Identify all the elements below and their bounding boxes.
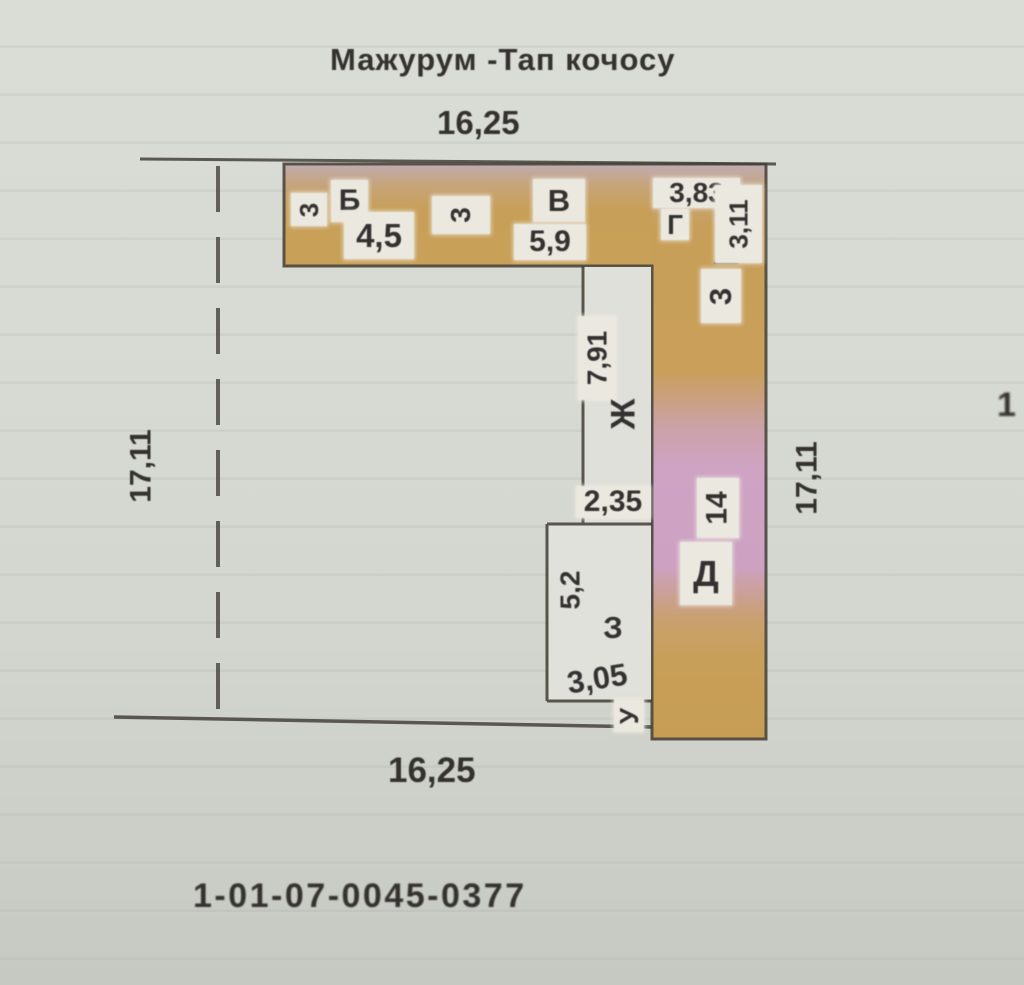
dim-right-17-11-text: 17,11 (793, 441, 823, 514)
street-title: Мажурум -Тап кочосу (330, 44, 676, 75)
room-label-u: У (614, 699, 644, 732)
scanned-plan-document: Мажурум -Тап кочосу 16,25 17,11 17,11 16… (0, 0, 1024, 985)
room-label-g-text: Г (667, 211, 683, 239)
dim-3-a: 3 (291, 193, 327, 226)
room-label-zh-text: Ж (606, 399, 640, 430)
dim-3-11: 3,11 (715, 185, 762, 263)
dim-bottom-16-25: 16,25 (388, 753, 476, 788)
dim-3-c: 3 (701, 269, 741, 323)
edge-artifact-digit: 1 (997, 388, 1016, 422)
room-label-g: Г (661, 209, 689, 240)
plot-boundary-bottom-line (114, 717, 652, 727)
dim-4-5-text: 4,5 (356, 219, 402, 252)
room-label-z-text: З (603, 612, 622, 643)
dim-3-05: 3,05 (556, 660, 638, 697)
dim-7-91: 7,91 (578, 316, 616, 400)
dim-top-16-25: 16,25 (437, 106, 520, 139)
dim-3-05-text: 3,05 (565, 658, 629, 698)
cadastral-number: 1-01-07-0045-0377 (193, 879, 527, 913)
room-label-d-text: Д (693, 556, 719, 592)
room-label-zh: Ж (600, 390, 646, 438)
room-label-d: Д (680, 542, 732, 605)
dim-7-91-text: 7,91 (583, 331, 611, 386)
dim-left-17-11-text: 17,11 (127, 429, 157, 502)
dim-3-b: 3 (432, 196, 490, 234)
room-label-z: З (597, 606, 629, 648)
dim-3-c-text: 3 (706, 287, 737, 304)
dim-5-2-text: 5,2 (556, 571, 584, 610)
dim-3-b-text: 3 (447, 207, 475, 223)
room-label-v: В (533, 179, 585, 222)
dim-14-text: 14 (703, 491, 733, 524)
dim-14: 14 (697, 478, 739, 538)
dim-5-9-text: 5,9 (529, 227, 571, 257)
dim-3-11-text: 3,11 (726, 199, 752, 248)
dim-2-35-text: 2,35 (584, 487, 642, 517)
dim-5-9: 5,9 (514, 224, 586, 260)
dim-3-a-text: 3 (296, 202, 322, 216)
dim-5-2: 5,2 (552, 558, 588, 622)
dim-4-5: 4,5 (344, 212, 414, 259)
dim-left-17-11: 17,11 (116, 412, 168, 520)
dim-right-17-11: 17,11 (782, 426, 834, 530)
room-label-v-text: В (548, 185, 570, 216)
dim-2-35: 2,35 (576, 486, 650, 518)
room-label-u-text: У (616, 707, 642, 723)
